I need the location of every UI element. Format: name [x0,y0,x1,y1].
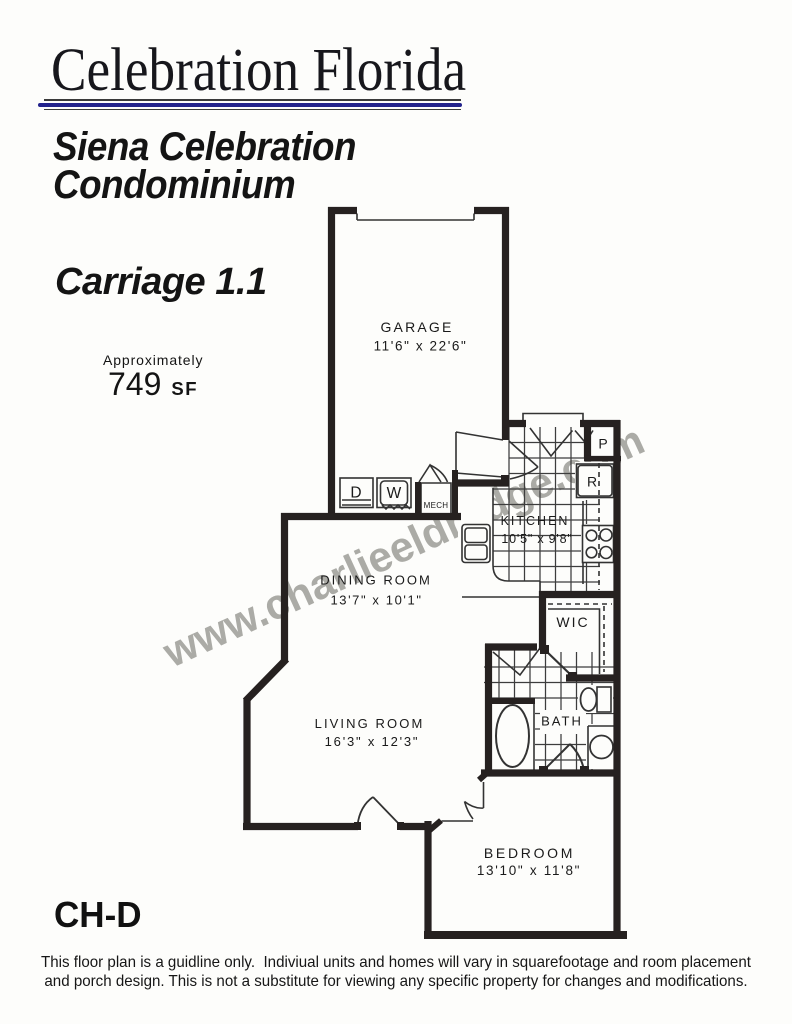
svg-text:www.charlieeldredge.com: www.charlieeldredge.com [156,417,652,678]
svg-text:MECH: MECH [424,501,449,510]
svg-text:BEDROOM: BEDROOM [484,845,575,861]
svg-text:BATH: BATH [541,714,583,729]
svg-text:DINING ROOM: DINING ROOM [320,573,432,588]
svg-text:16'3" x 12'3": 16'3" x 12'3" [325,734,420,749]
svg-text:R: R [587,474,597,490]
svg-text:10'5" x 9'8": 10'5" x 9'8" [501,532,572,546]
svg-text:GARAGE: GARAGE [380,319,453,335]
svg-text:D: D [350,485,361,502]
svg-text:KITCHEN: KITCHEN [501,514,570,528]
svg-text:WIC: WIC [556,614,589,630]
svg-text:LIVING ROOM: LIVING ROOM [315,716,425,731]
svg-text:11'6" x 22'6": 11'6" x 22'6" [374,339,468,354]
svg-text:13'10" x 11'8": 13'10" x 11'8" [477,863,581,878]
svg-text:W: W [387,485,402,502]
svg-text:P: P [598,436,607,452]
svg-text:13'7" x 10'1": 13'7" x 10'1" [330,593,422,608]
